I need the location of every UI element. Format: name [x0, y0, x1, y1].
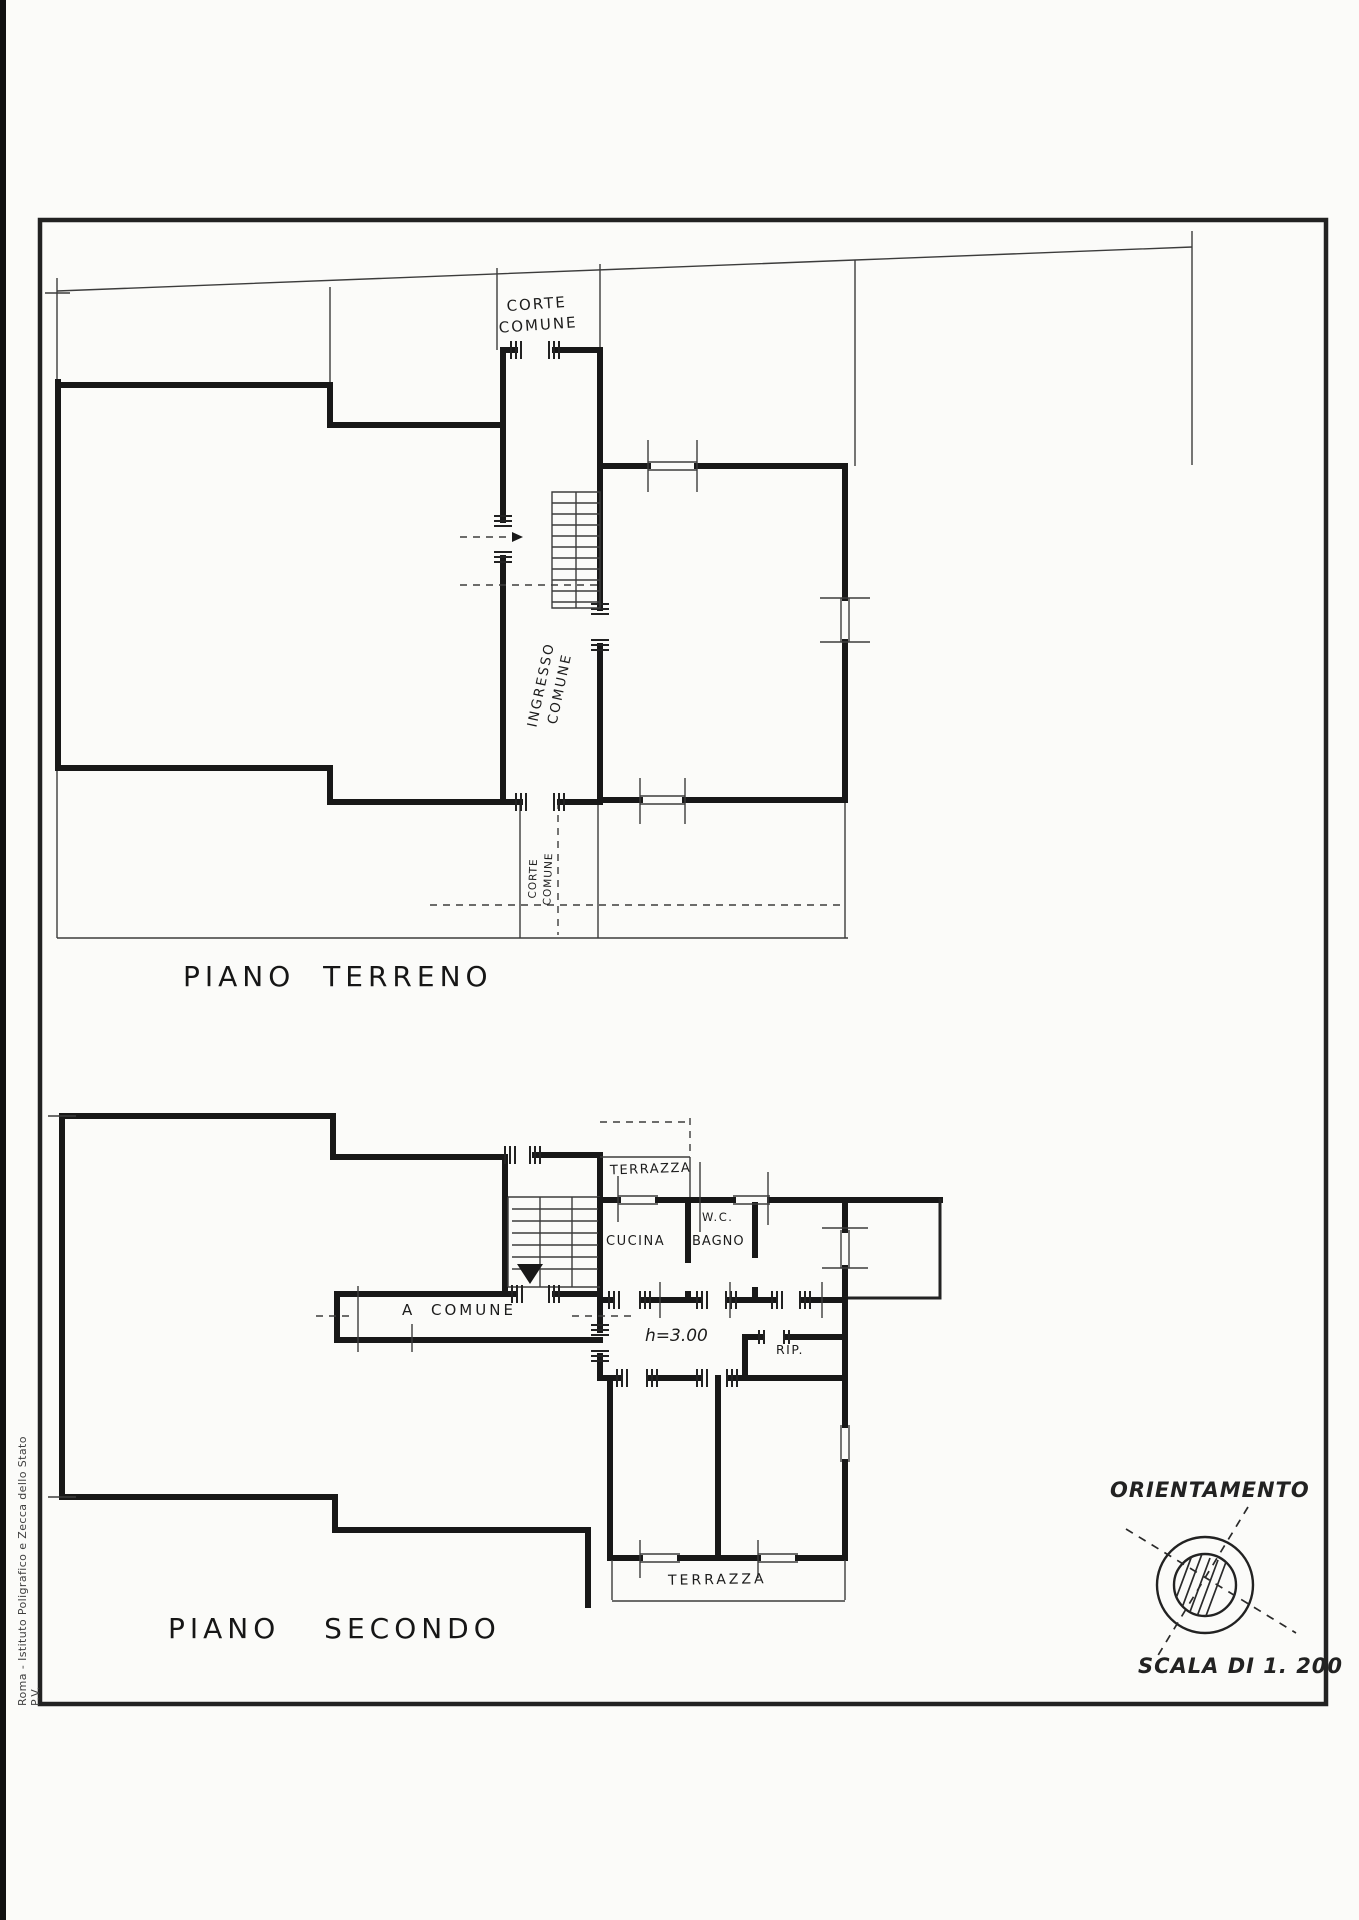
right-loggia-outline — [845, 1200, 940, 1298]
stair-down-arrow — [517, 1264, 543, 1284]
direction-arrow — [512, 532, 523, 542]
rip-label: RIP. — [776, 1342, 804, 1357]
corte-comune-top-label: CORTE COMUNE — [497, 291, 579, 338]
compass-figure — [1126, 1507, 1296, 1657]
compass-axes — [1126, 1507, 1296, 1657]
second-floor-stair — [508, 1197, 600, 1287]
ground-floor-linework — [45, 231, 1192, 938]
terrazza-top-label: TERRAZZA — [610, 1161, 692, 1179]
a-comune-label: A COMUNE — [402, 1301, 516, 1319]
terrazza-bottom-label: TERRAZZA — [668, 1571, 767, 1589]
bagno-label: BAGNO — [692, 1234, 745, 1249]
compass-outer-circle — [1157, 1537, 1253, 1633]
printer-imprint: Roma - Istituto Poligrafico e Zecca dell… — [16, 1414, 42, 1706]
cucina-label: CUCINA — [606, 1234, 665, 1249]
scale-label: SCALA DI 1. 200 — [1138, 1654, 1343, 1678]
wc-label: W.C. — [702, 1210, 733, 1224]
second-floor-title: PIANO SECONDO — [168, 1612, 501, 1645]
orientation-title: ORIENTAMENTO — [1110, 1478, 1310, 1502]
ceiling-height-label: h=3.00 — [645, 1326, 708, 1346]
corte-comune-bottom-label: CORTE COMUNE — [525, 828, 558, 929]
scanned-floorplan-sheet: CORTE COMUNE INGRESSO COMUNE CORTE COMUN… — [0, 0, 1359, 1920]
ground-floor-title: PIANO TERRENO — [183, 960, 493, 993]
ground-floor-stair — [552, 492, 600, 608]
second-floor-linework — [48, 1116, 940, 1605]
